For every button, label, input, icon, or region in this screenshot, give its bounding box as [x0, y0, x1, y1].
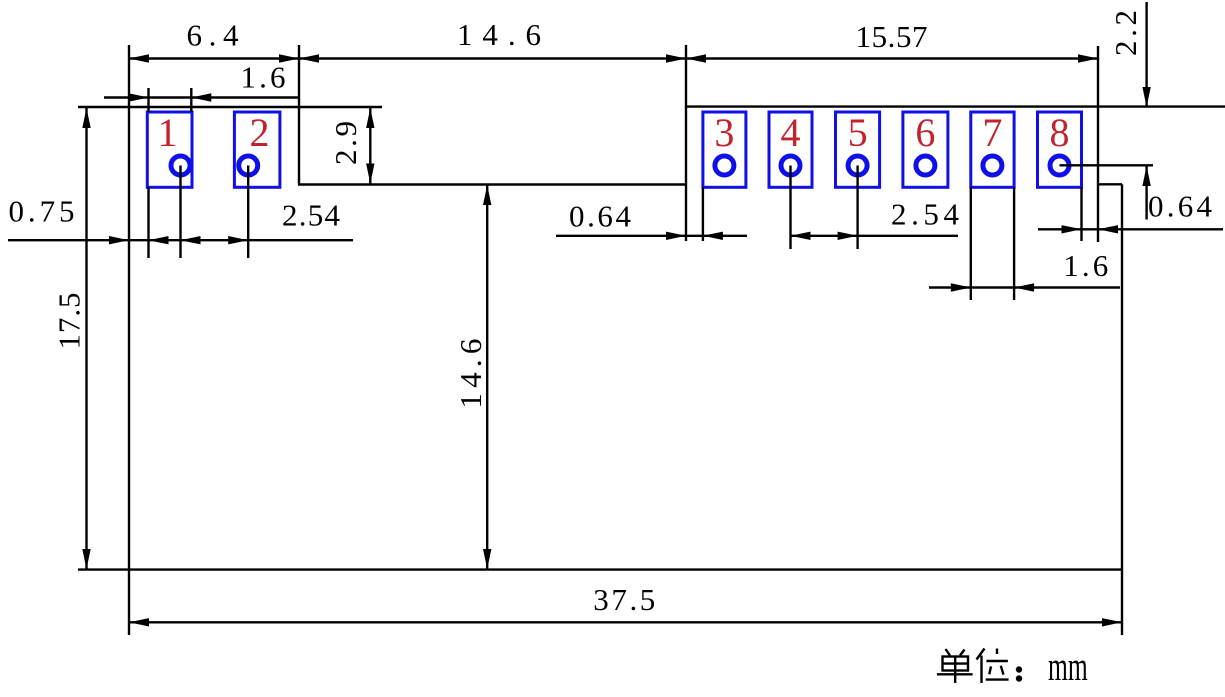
svg-text:8: 8 [1050, 110, 1070, 155]
svg-text:1.6: 1.6 [1063, 248, 1108, 283]
svg-text:2.2: 2.2 [1108, 10, 1143, 56]
svg-text:2: 2 [250, 110, 270, 155]
svg-text:0.75: 0.75 [9, 194, 75, 229]
svg-text:mm: mm [1048, 644, 1088, 689]
svg-text:0.64: 0.64 [1148, 189, 1213, 224]
svg-text:7: 7 [982, 110, 1002, 155]
svg-text:2.9: 2.9 [328, 121, 363, 165]
svg-text:15.57: 15.57 [856, 19, 928, 54]
svg-text:2.54: 2.54 [891, 197, 960, 232]
svg-text:17.5: 17.5 [52, 293, 87, 350]
svg-text:3: 3 [714, 110, 734, 155]
svg-text:6: 6 [915, 110, 935, 155]
svg-text:14.6: 14.6 [453, 339, 488, 409]
svg-text:6.4: 6.4 [187, 18, 240, 53]
svg-text:5: 5 [848, 110, 868, 155]
svg-text:37.5: 37.5 [593, 582, 655, 617]
svg-text:1.6: 1.6 [241, 60, 286, 95]
svg-text:2.54: 2.54 [282, 198, 341, 233]
svg-text:4: 4 [781, 110, 801, 155]
svg-text:0.64: 0.64 [569, 199, 632, 234]
svg-text:1: 1 [158, 110, 178, 155]
